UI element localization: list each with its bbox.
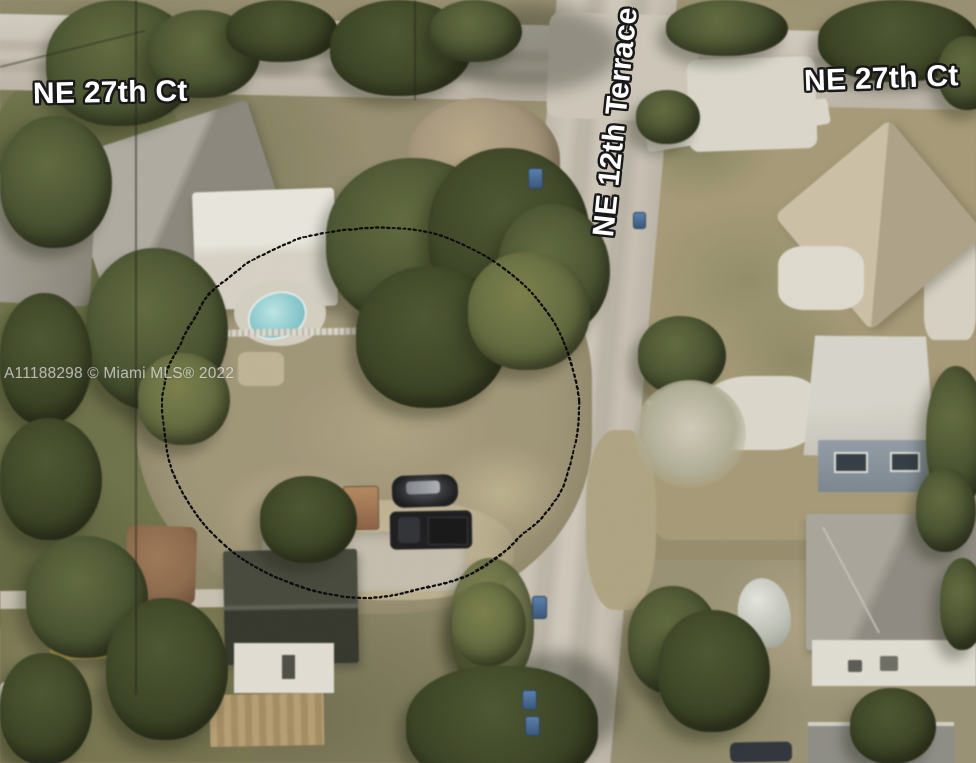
mls-watermark: A11188298 © Miami MLS® 2022 — [4, 365, 234, 383]
street-label-ne-27th-ct-left: NE 27th Ct — [33, 77, 188, 110]
aerial-parcel-map[interactable]: NE 27th Ct NE 27th Ct NE 12th Terrace A1… — [0, 0, 976, 763]
street-label-ne-27th-ct-right: NE 27th Ct — [804, 61, 960, 96]
